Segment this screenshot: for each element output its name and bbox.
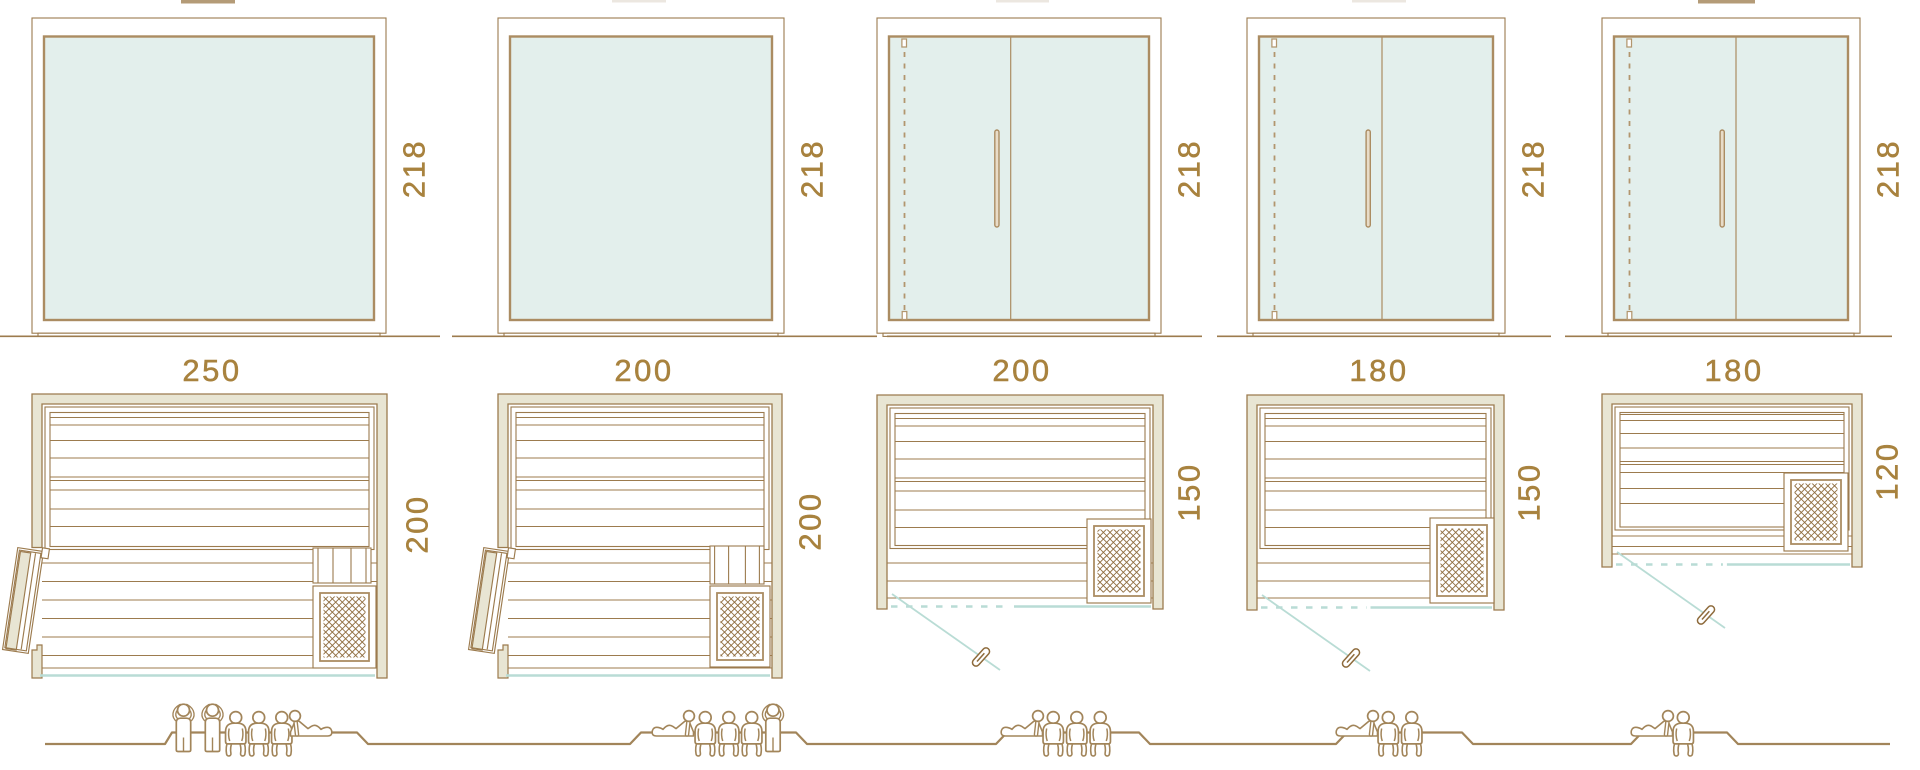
svg-text:200: 200 — [400, 494, 435, 553]
svg-text:150: 150 — [1512, 462, 1547, 521]
svg-text:250: 250 — [182, 353, 241, 388]
svg-text:218: 218 — [1871, 139, 1906, 198]
svg-text:200: 200 — [992, 353, 1051, 388]
svg-text:150: 150 — [1172, 462, 1207, 521]
svg-text:200: 200 — [614, 353, 673, 388]
svg-text:180: 180 — [1349, 353, 1408, 388]
svg-text:218: 218 — [1172, 139, 1207, 198]
svg-text:218: 218 — [1516, 139, 1551, 198]
svg-text:200: 200 — [793, 491, 828, 550]
svg-text:218: 218 — [397, 139, 432, 198]
svg-text:218: 218 — [795, 139, 830, 198]
svg-text:180: 180 — [1704, 353, 1763, 388]
svg-text:120: 120 — [1870, 441, 1905, 500]
